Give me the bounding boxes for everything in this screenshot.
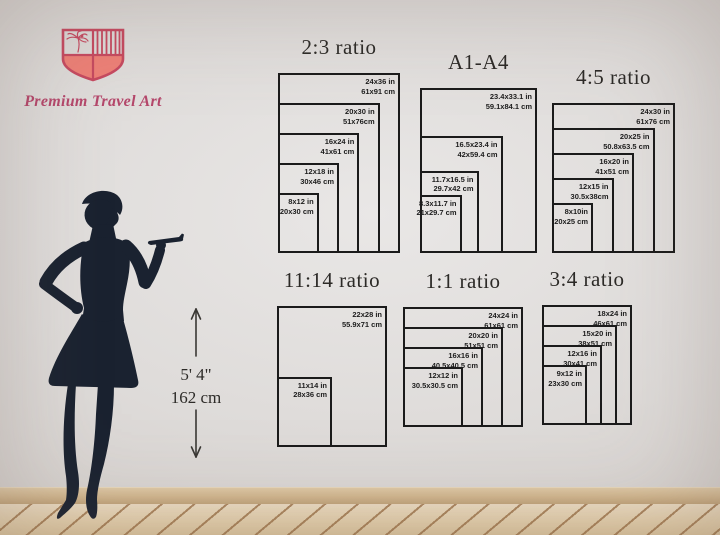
size-chart: 1:1 ratio24x24 in61x61 cm20x20 in51x51 c… <box>403 307 523 427</box>
size-label-cm: 42x59.4 cm <box>455 150 497 160</box>
size-label: 8x10in20x25 cm <box>554 207 588 226</box>
tray-arm-forearm <box>146 250 160 284</box>
size-label-cm: 28x36 cm <box>293 390 327 400</box>
size-label-inches: 16x16 in <box>432 351 478 361</box>
brand-logo: Premium Travel Art <box>18 28 168 111</box>
size-label-cm: 23x30 cm <box>548 379 582 389</box>
size-label: 12x12 in30.5x30.5 cm <box>412 371 458 390</box>
size-label-inches: 11.7x16.5 in <box>432 175 474 185</box>
chart-title: 3:4 ratio <box>549 267 624 292</box>
size-label: 20x25 in50.8x63.5 cm <box>603 132 649 151</box>
size-chart: 2:3 ratio24x36 in61x91 cm20x30 in51x76cm… <box>278 73 400 253</box>
chart-title: 4:5 ratio <box>576 65 651 90</box>
height-feet-inches: 5' 4" <box>166 365 226 385</box>
size-label: 24x30 in61x76 cm <box>636 107 670 126</box>
size-label: 16x24 in41x61 cm <box>321 137 355 156</box>
size-label-inches: 20x25 in <box>603 132 649 142</box>
size-label-cm: 20x30 cm <box>280 207 314 217</box>
chart-title: 2:3 ratio <box>301 35 376 60</box>
size-label-cm: 30.5x38cm <box>571 192 609 202</box>
size-label-inches: 12x12 in <box>412 371 458 381</box>
down-arrow-icon <box>188 408 204 460</box>
size-label-cm: 41x61 cm <box>321 147 355 157</box>
size-label-inches: 9x12 in <box>548 369 582 379</box>
size-label: 24x36 in61x91 cm <box>361 77 395 96</box>
size-label-inches: 12x15 in <box>571 182 609 192</box>
chart-title: 1:1 ratio <box>425 269 500 294</box>
tray <box>148 234 184 246</box>
size-label-inches: 16x20 in <box>595 157 629 167</box>
shield-icon <box>61 28 125 82</box>
size-label-inches: 20x30 in <box>343 107 375 117</box>
size-label: 20x30 in51x76cm <box>343 107 375 126</box>
chart-title: A1-A4 <box>448 50 509 75</box>
size-label-cm: 59.1x84.1 cm <box>486 102 532 112</box>
size-label-inches: 8.3x11.7 in <box>416 199 456 209</box>
size-box: 8x10in20x25 cm <box>552 203 593 253</box>
up-arrow-icon <box>188 306 204 358</box>
size-box: 12x12 in30.5x30.5 cm <box>403 367 463 427</box>
size-label-cm: 29.7x42 cm <box>432 184 474 194</box>
size-label-inches: 24x24 in <box>484 311 518 321</box>
size-label-inches: 11x14 in <box>293 381 327 391</box>
size-chart: 3:4 ratio18x24 in46x61 cm15x20 in38x51 c… <box>542 305 632 425</box>
room-scene: Premium Travel Art <box>0 0 720 535</box>
size-box: 11x14 in28x36 cm <box>277 377 332 448</box>
size-label-inches: 20x20 in <box>464 331 498 341</box>
size-label-inches: 12x18 in <box>300 167 334 177</box>
size-label: 12x15 in30.5x38cm <box>571 182 609 201</box>
size-label: 23.4x33.1 in59.1x84.1 cm <box>486 92 532 111</box>
height-indicator: 5' 4" 162 cm <box>166 306 226 460</box>
size-label: 16x20 in41x51 cm <box>595 157 629 176</box>
size-label: 16.5x23.4 in42x59.4 cm <box>455 140 497 159</box>
size-label-inches: 22x28 in <box>342 310 382 320</box>
vertical-stripes <box>98 31 120 54</box>
size-label-inches: 8x12 in <box>280 197 314 207</box>
size-label-inches: 15x20 in <box>578 329 612 339</box>
size-label-cm: 61x91 cm <box>361 87 395 97</box>
size-box: 8.3x11.7 in21x29.7 cm <box>420 195 462 253</box>
size-label: 11x14 in28x36 cm <box>293 381 327 400</box>
size-label: 9x12 in23x30 cm <box>548 369 582 388</box>
size-label-inches: 16x24 in <box>321 137 355 147</box>
size-label-cm: 61x76 cm <box>636 117 670 127</box>
size-label: 8.3x11.7 in21x29.7 cm <box>416 199 456 218</box>
size-label-cm: 21x29.7 cm <box>416 208 456 218</box>
size-label-cm: 30.5x30.5 cm <box>412 381 458 391</box>
size-label-cm: 55.9x71 cm <box>342 320 382 330</box>
left-leg <box>57 384 79 519</box>
skirt <box>49 314 139 388</box>
size-chart: 4:5 ratio24x30 in61x76 cm20x25 in50.8x63… <box>552 103 675 253</box>
size-label-inches: 18x24 in <box>593 309 627 319</box>
size-label-inches: 16.5x23.4 in <box>455 140 497 150</box>
size-label-inches: 24x36 in <box>361 77 395 87</box>
size-chart: 11:14 ratio22x28 in55.9x71 cm11x14 in28x… <box>277 306 387 447</box>
size-label-cm: 50.8x63.5 cm <box>603 142 649 152</box>
size-box: 8x12 in20x30 cm <box>278 193 319 253</box>
size-chart: A1-A423.4x33.1 in59.1x84.1 cm16.5x23.4 i… <box>420 88 537 253</box>
size-label: 11.7x16.5 in29.7x42 cm <box>432 175 474 194</box>
size-label: 22x28 in55.9x71 cm <box>342 310 382 329</box>
size-label: 12x18 in30x46 cm <box>300 167 334 186</box>
hip-hand <box>71 302 83 314</box>
height-centimeters: 162 cm <box>166 388 226 408</box>
size-label-inches: 23.4x33.1 in <box>486 92 532 102</box>
hip-arm-forearm <box>44 284 74 306</box>
size-label-inches: 8x10in <box>554 207 588 217</box>
brand-name: Premium Travel Art <box>18 93 168 111</box>
size-box: 9x12 in23x30 cm <box>542 365 587 425</box>
size-label-inches: 24x30 in <box>636 107 670 117</box>
size-label-cm: 41x51 cm <box>595 167 629 177</box>
right-leg <box>86 384 114 519</box>
size-label-inches: 12x16 in <box>563 349 597 359</box>
size-label-cm: 20x25 cm <box>554 217 588 227</box>
palm-tree-icon <box>67 31 88 52</box>
chart-title: 11:14 ratio <box>284 268 380 293</box>
size-label: 8x12 in20x30 cm <box>280 197 314 216</box>
size-label-cm: 51x76cm <box>343 117 375 127</box>
hip-arm-upper <box>46 248 84 282</box>
size-label-cm: 30x46 cm <box>300 177 334 187</box>
